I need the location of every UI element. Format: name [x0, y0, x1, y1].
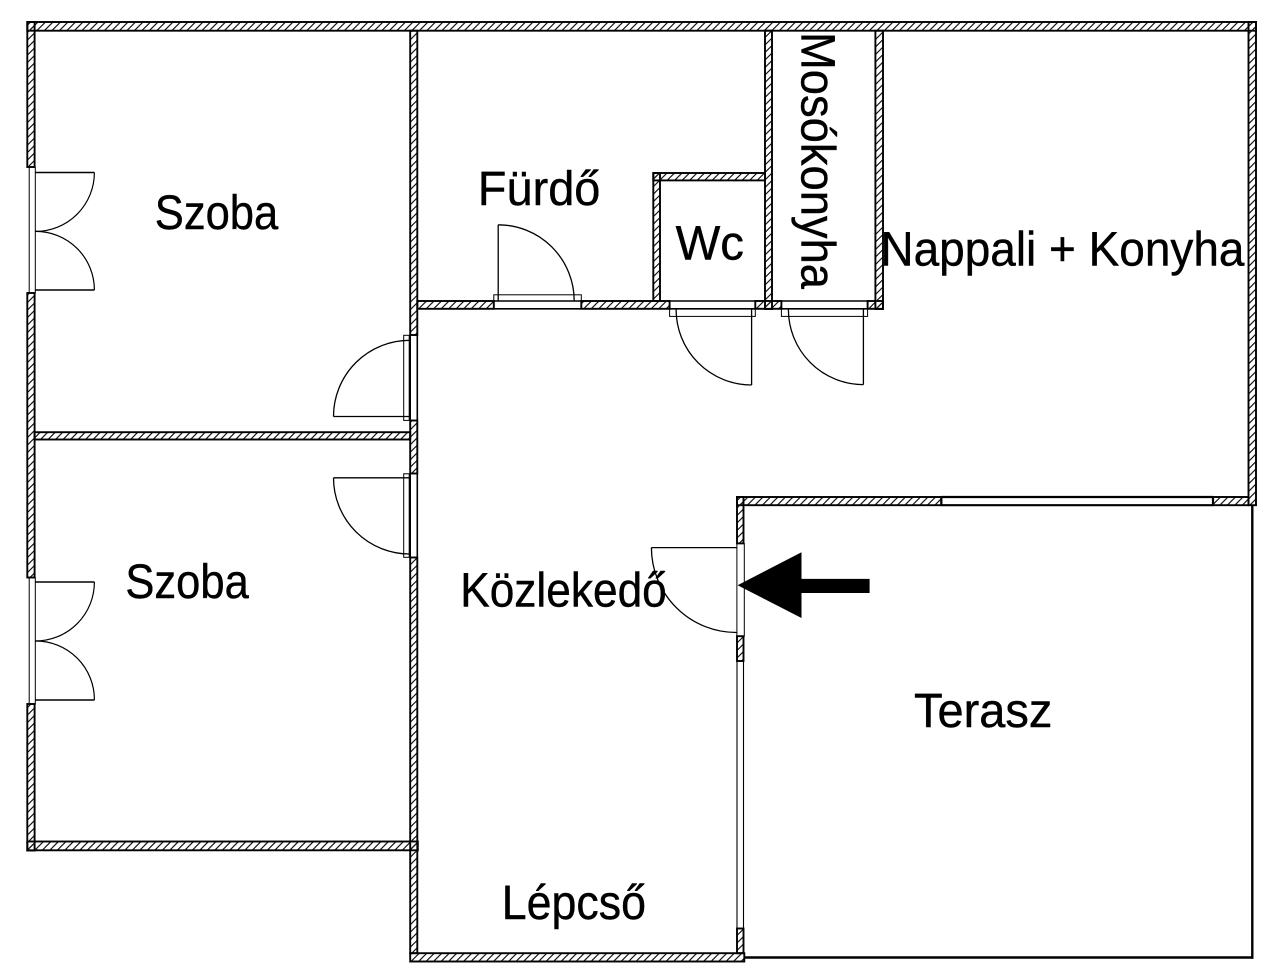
- svg-text:Terasz: Terasz: [914, 685, 1052, 738]
- svg-text:Mosókonyha: Mosókonyha: [791, 32, 844, 289]
- svg-text:Szoba: Szoba: [155, 187, 279, 240]
- svg-text:Nappali + Konyha: Nappali + Konyha: [880, 223, 1244, 276]
- svg-text:Lépcső: Lépcső: [502, 877, 646, 930]
- svg-text:Közlekedő: Közlekedő: [460, 565, 667, 618]
- svg-text:Wc: Wc: [676, 218, 744, 271]
- svg-text:Fürdő: Fürdő: [478, 163, 601, 216]
- svg-text:Szoba: Szoba: [125, 556, 249, 609]
